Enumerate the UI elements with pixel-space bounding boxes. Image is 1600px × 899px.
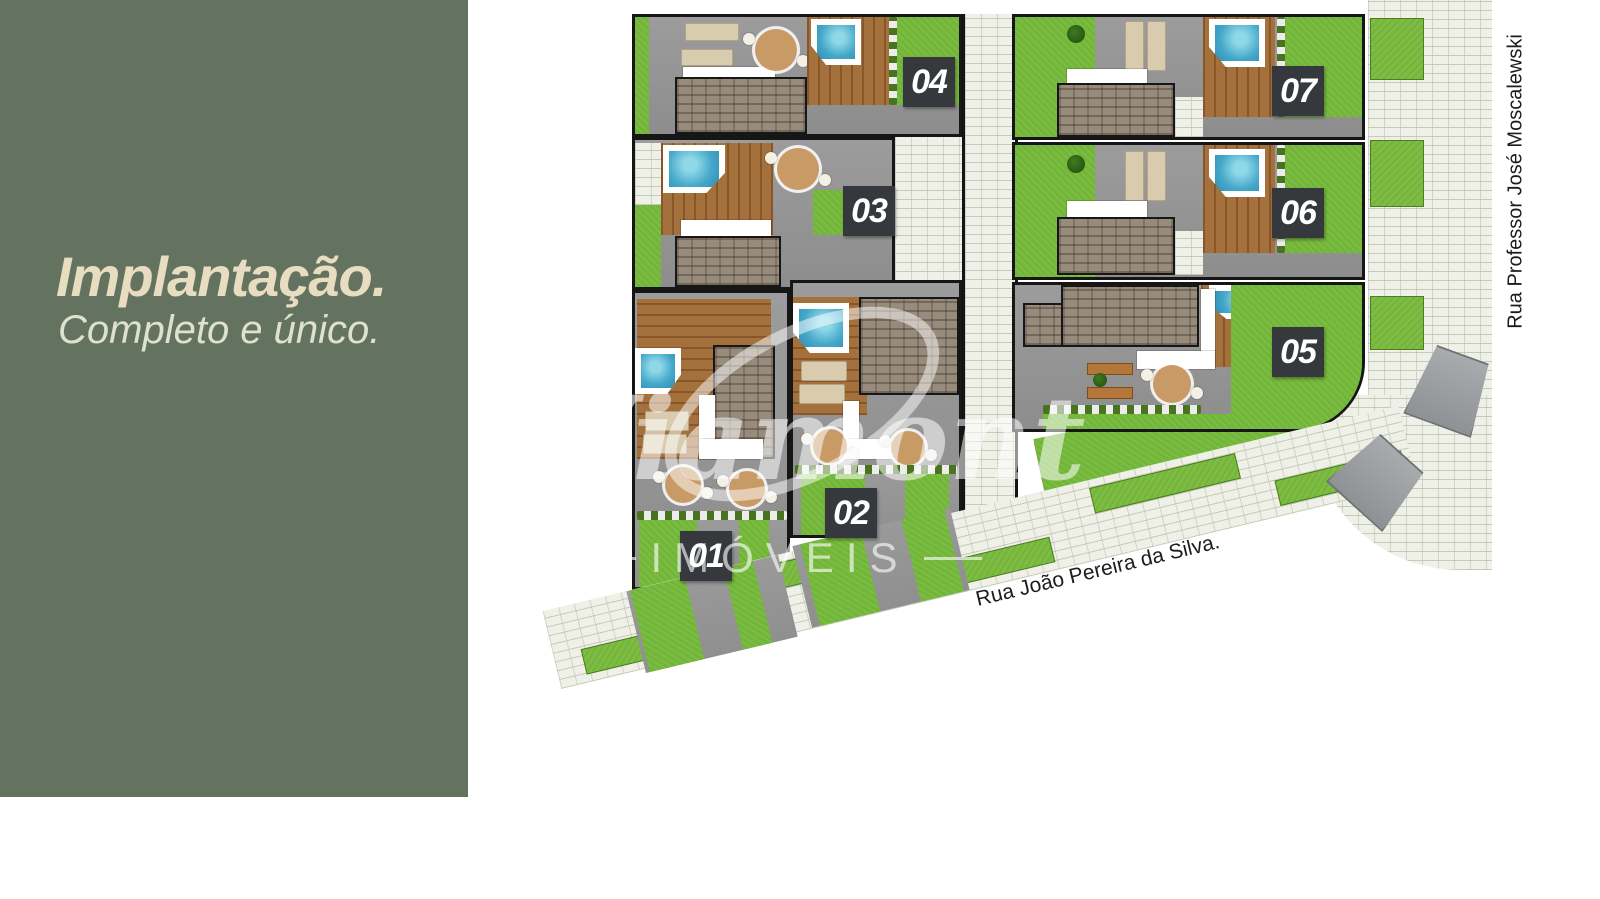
paver-garage-pad — [1023, 303, 1063, 347]
central-walkway — [962, 14, 1018, 514]
sun-lounger — [1147, 21, 1166, 71]
patio-table — [813, 429, 847, 463]
lawn — [1043, 414, 1231, 429]
unit-badge-05: 05 — [1272, 327, 1324, 377]
side-paver-strip — [1175, 97, 1203, 137]
pool-water — [1215, 25, 1259, 61]
pool-water — [799, 309, 843, 347]
sun-lounger — [799, 384, 845, 404]
paver-garage-pad — [1061, 285, 1199, 347]
shrub — [1093, 373, 1107, 387]
patio-table — [1153, 365, 1191, 403]
paver-garage-pad — [1057, 217, 1175, 275]
unit-badge-03: 03 — [843, 186, 895, 236]
tree — [1067, 155, 1085, 173]
watermark-line-left — [578, 557, 636, 560]
sun-lounger — [1125, 21, 1144, 71]
patio-table — [729, 471, 765, 507]
sun-lounger — [1147, 151, 1166, 201]
patio-table — [891, 431, 925, 465]
white-wall — [681, 220, 771, 236]
pool-water — [817, 25, 855, 59]
street-label-right: Rua Professor José Moscalewski — [1505, 17, 1528, 347]
hedge-row — [889, 17, 897, 105]
sun-lounger — [681, 49, 733, 66]
central-plaza — [895, 137, 962, 290]
tree — [1067, 25, 1085, 43]
garden-bench — [1087, 387, 1133, 399]
unit-badge-01: 01 — [680, 531, 732, 581]
pool-water — [669, 151, 719, 187]
page-title: Implantação. — [56, 244, 456, 309]
white-wall — [1067, 201, 1147, 217]
hedge-row — [795, 465, 957, 474]
dining-table — [755, 29, 797, 71]
sidewalk-planting-strip — [1370, 140, 1424, 207]
pool-water — [641, 354, 675, 388]
lawn — [635, 205, 661, 287]
sun-lounger — [643, 434, 687, 454]
lawn — [635, 17, 649, 134]
hedge-row — [1043, 405, 1201, 414]
sun-lounger — [801, 361, 847, 381]
unit-badge-07: 07 — [1272, 66, 1324, 116]
garden-bench — [1087, 363, 1133, 375]
paver-garage-pad — [675, 236, 781, 287]
page-subtitle: Completo e único. — [58, 308, 458, 353]
brand-panel — [0, 0, 468, 797]
paver-garage-pad — [675, 77, 807, 134]
unit-badge-04: 04 — [903, 57, 955, 107]
dining-table — [777, 148, 819, 190]
side-paver-strip — [1175, 231, 1203, 275]
unit-badge-02: 02 — [825, 488, 877, 538]
sidewalk-planting-strip — [1370, 18, 1424, 80]
side-paver-strip — [635, 143, 661, 205]
patio-table — [665, 467, 701, 503]
unit-badge-06: 06 — [1272, 188, 1324, 238]
sun-lounger — [645, 411, 689, 431]
sun-lounger — [685, 23, 739, 41]
sun-lounger — [1125, 151, 1144, 201]
paver-garage-pad — [1057, 83, 1175, 137]
pool-water — [1215, 155, 1259, 191]
hedge-row — [637, 511, 787, 520]
paver-garage-pad — [859, 297, 959, 395]
sidewalk-planting-strip — [1370, 296, 1424, 350]
white-wall — [699, 439, 763, 459]
